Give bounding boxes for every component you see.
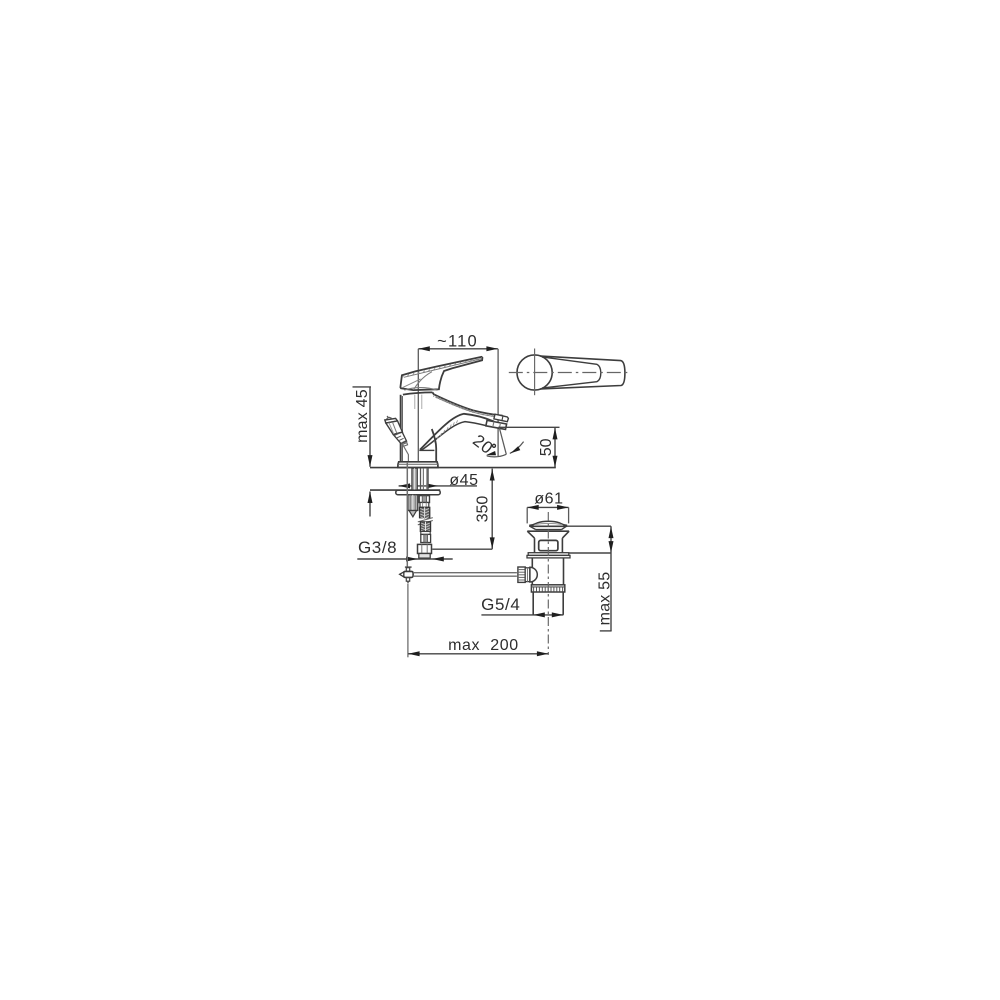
svg-text:ø61: ø61: [534, 491, 563, 508]
svg-text:50: 50: [538, 438, 555, 456]
svg-text:~110: ~110: [437, 333, 478, 351]
svg-text:max 45: max 45: [354, 389, 371, 443]
svg-text:max 200: max 200: [448, 637, 519, 654]
svg-text:G5/4: G5/4: [481, 595, 520, 614]
svg-text:max 55: max 55: [596, 572, 613, 626]
svg-text:350: 350: [475, 496, 492, 523]
svg-text:G3/8: G3/8: [358, 538, 397, 557]
